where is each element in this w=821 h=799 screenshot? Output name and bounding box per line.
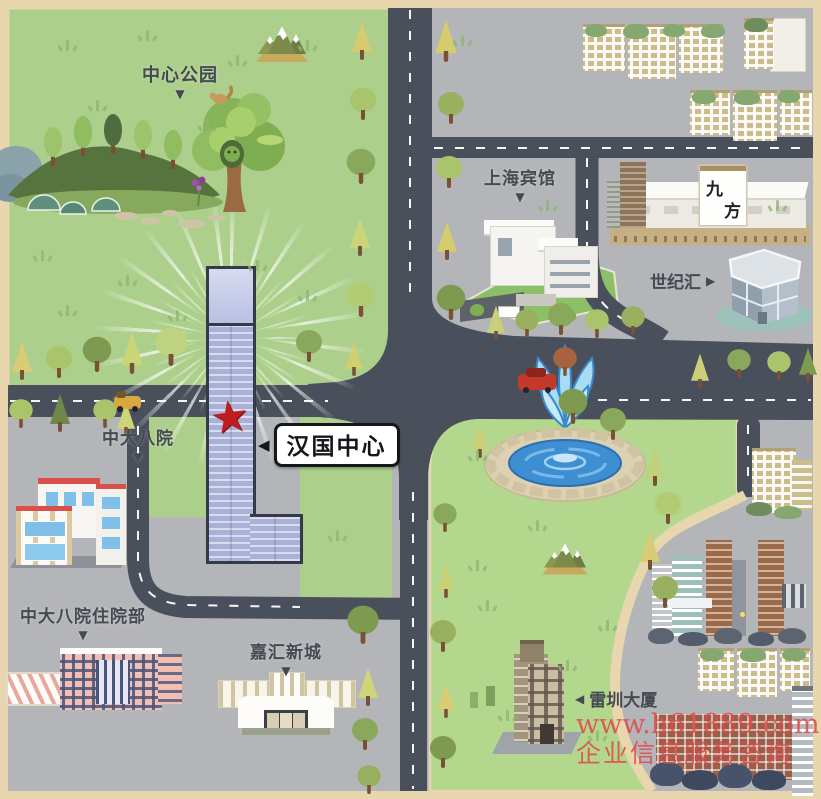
down-arrow-icon: ▼ (242, 665, 330, 678)
zhongda-hospital-label: 中大八院 ▼ (86, 430, 190, 464)
down-arrow-icon: ▼ (86, 451, 190, 464)
stepping-stones (114, 210, 225, 228)
left-arrow-icon: ◀ (575, 692, 584, 706)
snow-mountain-icon (250, 18, 314, 66)
down-arrow-icon: ▼ (468, 191, 572, 204)
jiufang-sign-char-bottom: 方 (724, 197, 741, 222)
watermark-caption: 企业信息服务咨询 (576, 740, 820, 768)
apartment-row (583, 24, 743, 82)
shanghai-hotel-building (458, 208, 618, 330)
jiahui-town-label: 嘉汇新城 ▼ (242, 644, 330, 678)
snow-mountain-icon (534, 536, 596, 578)
century-hui-label: 世纪汇 ▶ (650, 268, 715, 293)
left-arrow-icon: ◀ (258, 436, 270, 454)
right-arrow-icon: ▶ (706, 274, 715, 288)
watermark-url: www.h61889.com (576, 710, 820, 740)
hanguo-tower-wing (250, 514, 303, 564)
leizhen-building (462, 636, 582, 762)
apartment-corner (744, 18, 814, 84)
down-arrow-icon: ▼ (10, 629, 156, 642)
hanguo-center-label: ◀ 汉国中心 (258, 423, 400, 467)
star-icon: ★ (207, 393, 252, 442)
fountain-icon (480, 330, 660, 510)
tower-glass-cap (209, 269, 253, 326)
inpatient-building (6, 640, 182, 706)
down-arrow-icon: ▼ (118, 88, 242, 101)
city-skyline (648, 536, 808, 642)
shanghai-hotel-label: 上海宾馆 ▼ (468, 170, 572, 204)
car-icon (498, 306, 520, 318)
leizhen-tower-label: ◀ 雷圳大厦 (575, 686, 657, 711)
jiufang-sign: 九 方 (700, 166, 746, 225)
jiahui-building (212, 672, 360, 736)
red-car-icon (518, 374, 556, 390)
apartment-row (690, 90, 814, 146)
jiufang-sign-char-top: 九 (706, 175, 723, 200)
zhongda-inpatient-label: 中大八院住院部 ▼ (10, 608, 156, 642)
century-hui-building (712, 232, 816, 332)
central-park-label: 中心公园 ▼ (118, 66, 242, 101)
illustrated-location-map: 九 方 (0, 0, 821, 799)
yellow-truck-icon (114, 396, 141, 409)
watermark: www.h61889.com 企业信息服务咨询 (576, 710, 820, 768)
apartment-small (746, 436, 814, 532)
zhongda-hospital-building (10, 470, 128, 570)
park-scene (8, 90, 338, 250)
chimney-icon (620, 162, 646, 228)
